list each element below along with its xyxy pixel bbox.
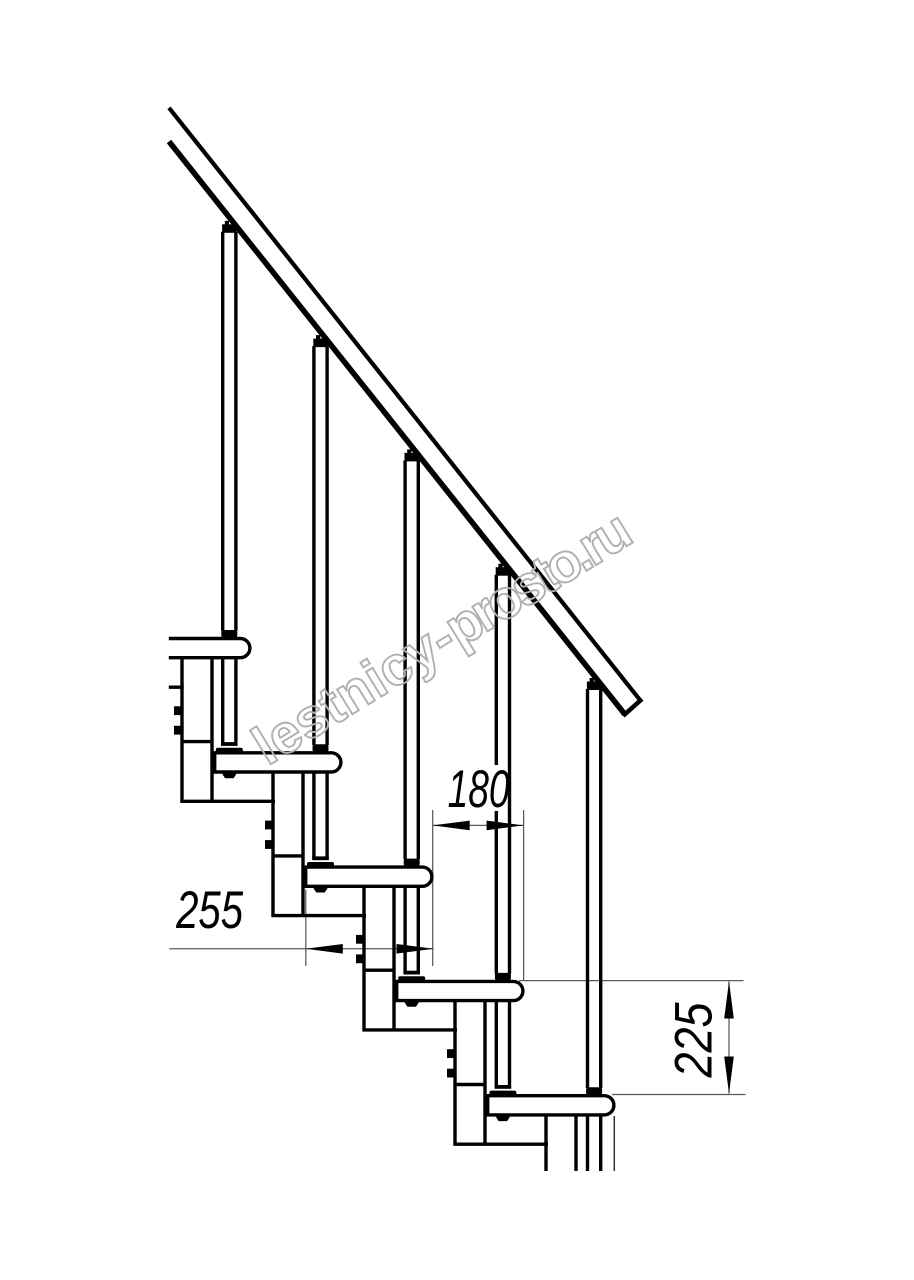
svg-text:255: 255 [175,881,243,940]
svg-text:180: 180 [448,760,510,819]
svg-text:225: 225 [665,1002,724,1078]
